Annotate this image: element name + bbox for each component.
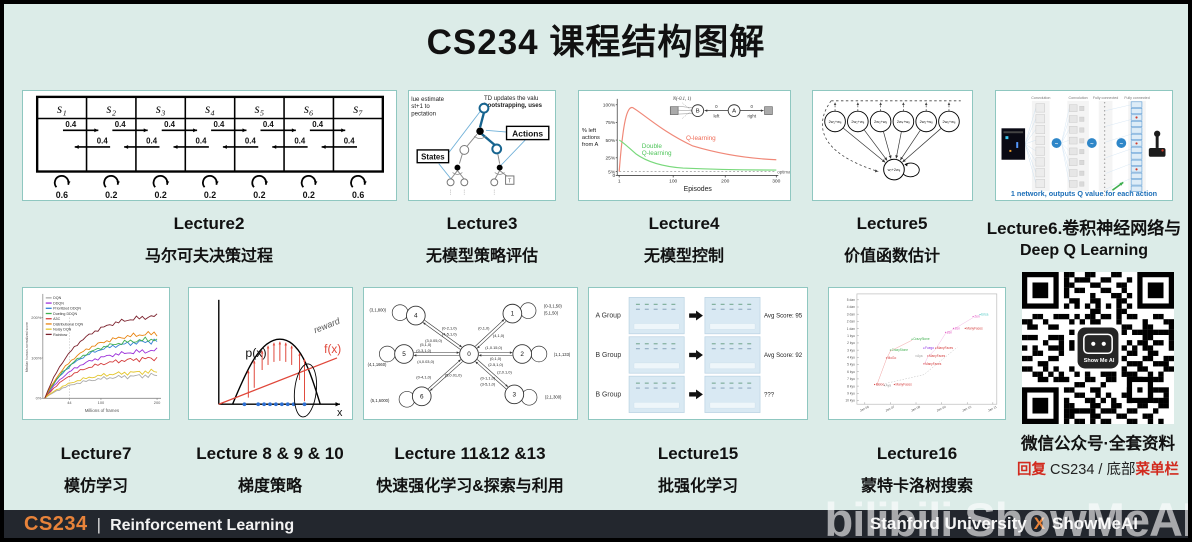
svg-text:(0-1,1,0): (0-1,1,0) [480,376,496,381]
svg-text:0.4: 0.4 [344,137,356,146]
qr-reply-menu: 菜单栏 [1135,462,1179,478]
svg-text:optimal: optimal [777,169,791,174]
lecture5-thumbnail: 2w₁+w₈2w₂+w₈2w₃+w₈2w₄+w₈2w₅+w₈2w₆+w₈w₇+2… [812,90,973,201]
svg-text:MoGo: MoGo [876,383,885,387]
svg-text:ManyFaces: ManyFaces [929,354,946,358]
svg-text:CrazyStone: CrazyStone [892,348,909,352]
svg-text:st+1 to: st+1 to [411,103,430,110]
svg-text:Jan 06: Jan 06 [859,405,870,413]
svg-text:75%: 75% [605,120,615,126]
svg-text:???: ??? [764,392,775,399]
svg-text:x: x [337,407,343,419]
svg-text:0.2: 0.2 [105,190,117,200]
svg-text:0.4: 0.4 [65,120,77,129]
svg-text:N(-0.1, 1): N(-0.1, 1) [672,97,692,102]
svg-text:(0-3,1,0): (0-3,1,0) [416,348,432,353]
svg-text:4: 4 [414,313,418,320]
svg-text:Avg Score: 92: Avg Score: 92 [764,352,803,359]
svg-text:0.4: 0.4 [245,137,257,146]
svg-text:(4-5,1,0): (4-5,1,0) [442,331,458,336]
svg-text:6 kyu: 6 kyu [847,370,855,374]
svg-text:3 kyu: 3 kyu [847,348,855,352]
svg-text:A3C: A3C [53,317,60,321]
svg-text:CrazyStone: CrazyStone [913,337,930,341]
lecture11-12-13-thumbnail: 0123456(0-3,1,50)(5,1,50)(1,1,133)(2,1,3… [363,287,578,420]
svg-text:right: right [747,114,756,119]
svg-text:5 kyu: 5 kyu [847,363,855,367]
svg-text:2w₆+w₈: 2w₆+w₈ [942,120,955,124]
svg-text:1 kyu: 1 kyu [847,334,855,338]
svg-text:0.4: 0.4 [196,137,208,146]
svg-text:~: ~ [1055,142,1059,148]
footer-divider: | [97,515,101,534]
svg-text:0.4: 0.4 [312,120,324,129]
svg-text:0.2: 0.2 [204,190,216,200]
svg-text:2w₃+w₈: 2w₃+w₈ [874,120,887,124]
svg-text:B Group: B Group [596,392,622,399]
svg-text:ManyFaces: ManyFaces [937,346,954,350]
university-name: Stanford University [870,514,1027,533]
qr-reply-keyword: 回复 [1017,462,1046,478]
brand-name: ShowMeAI [1052,514,1138,533]
svg-text:1: 1 [511,311,515,318]
svg-text:(0,1,0): (0,1,0) [490,356,502,361]
svg-text:A Group: A Group [596,313,621,320]
svg-text:s₃: s₃ [156,101,166,116]
svg-text:(5,1,50): (5,1,50) [544,311,559,316]
svg-text:Millions of frames: Millions of frames [85,408,120,413]
svg-text:⋮: ⋮ [448,190,454,196]
lecture6-title: Lecture6.卷积神经网络与 [884,214,1192,239]
svg-text:0.2: 0.2 [303,190,315,200]
footer-left: CS234|Reinforcement Learning [24,513,294,536]
svg-text:Jan 07: Jan 07 [885,405,896,413]
svg-text:(5,1,6000): (5,1,6000) [371,398,390,403]
svg-text:0.4: 0.4 [263,120,275,129]
svg-text:100: 100 [98,400,105,405]
qr-instruction: 回复 CS234 / 底部菜单栏 [988,458,1192,479]
svg-text:Jan 08: Jan 08 [910,405,921,413]
svg-text:(5,0.01,0): (5,0.01,0) [445,373,462,378]
footer-bar: CS234|Reinforcement Learning Stanford Un… [4,510,1188,538]
svg-text:s₆: s₆ [304,101,314,116]
svg-text:5: 5 [402,351,406,358]
collab-x-icon: X [1034,514,1045,533]
svg-text:from A: from A [582,142,599,148]
svg-text:100%: 100% [31,355,42,360]
lecture6-subtitle: Deep Q Learning [884,242,1192,260]
svg-text:(4,1,1660): (4,1,1660) [368,362,387,367]
svg-text:Zen: Zen [955,326,961,330]
svg-text:ManyFaces: ManyFaces [966,326,983,330]
svg-text:MoGo: MoGo [888,356,897,360]
svg-text:(4,0.03,0): (4,0.03,0) [417,359,434,364]
svg-text:Zen: Zen [947,330,953,334]
svg-text:2w₅+w₈: 2w₅+w₈ [920,120,933,124]
svg-text:5 dan: 5 dan [847,298,855,302]
svg-text:s₅: s₅ [254,101,264,116]
svg-text:~: ~ [1090,142,1094,148]
svg-text:B: B [696,109,700,115]
svg-text:DDQN: DDQN [53,301,64,305]
svg-text:Erica: Erica [981,313,988,317]
svg-text:0: 0 [715,104,718,109]
svg-text:Jan 10: Jan 10 [962,405,973,413]
svg-text:Actions: Actions [512,128,543,138]
svg-text:Rainbow: Rainbow [53,333,67,337]
svg-text:Zen: Zen [974,315,980,319]
svg-text:Fully connected: Fully connected [1093,96,1118,100]
svg-text:lue estimate: lue estimate [411,96,444,103]
svg-text:0.4: 0.4 [214,120,226,129]
svg-text:4 dan: 4 dan [847,305,855,309]
svg-text:2 kyu: 2 kyu [847,341,855,345]
lecture15-thumbnail: A GroupAvg Score: 95B GroupAvg Score: 92… [588,287,808,420]
svg-text:p(x): p(x) [245,346,266,360]
svg-text:0: 0 [613,173,616,179]
svg-text:TD updates the valu: TD updates the valu [484,95,538,102]
svg-text:(2-5,1,0): (2-5,1,0) [488,362,504,367]
svg-text:0.4: 0.4 [164,120,176,129]
svg-text:Dueling DDQN: Dueling DDQN [53,312,77,316]
svg-text:Jan 09: Jan 09 [936,405,947,413]
svg-text:(5,1,0): (5,1,0) [420,342,432,347]
svg-text:300: 300 [772,178,780,184]
footer-right: Stanford UniversityXShowMeAI [870,514,1138,534]
lecture6-thumbnail: ConvolutionConvolutionFully connectedFul… [995,90,1173,201]
svg-text:200: 200 [154,400,161,405]
svg-text:(3,1,800): (3,1,800) [370,308,387,313]
svg-text:200%: 200% [31,315,42,320]
svg-text:0%: 0% [36,396,42,401]
svg-text:100: 100 [669,178,677,184]
svg-text:s₇: s₇ [353,101,363,116]
svg-text:2 dan: 2 dan [847,320,855,324]
svg-text:(1,1,133): (1,1,133) [554,352,571,357]
svg-text:1 dan: 1 dan [847,327,855,331]
course-name: Reinforcement Learning [110,517,294,534]
infographic-page: CS234 课程结构图解 s₁s₂s₃s₄s₅s₆s₇0.40.40.40.40… [0,0,1192,542]
svg-text:2w₄+w₈: 2w₄+w₈ [897,120,910,124]
svg-text:bootstrapping, uses: bootstrapping, uses [484,102,543,109]
svg-text:(0-4,1,0): (0-4,1,0) [416,375,432,380]
svg-text:200: 200 [721,178,729,184]
svg-text:(0-2,1,0): (0-2,1,0) [442,325,458,330]
svg-text:Convolution: Convolution [1069,96,1088,100]
svg-text:0: 0 [751,104,754,109]
svg-text:Prioritized DDQN: Prioritized DDQN [53,307,81,311]
svg-text:6: 6 [420,393,424,400]
svg-text:ManyFaces: ManyFaces [925,362,942,366]
lecture7-thumbnail: 200%100%0%Median human-normalized score4… [22,287,170,420]
svg-text:(1,0.15,0): (1,0.15,0) [485,345,502,350]
svg-text:Convolution: Convolution [1031,96,1050,100]
lecture3-thumbnail: lue estimatest+1 topectationTD updates t… [408,90,556,201]
svg-text:2w₂+w₈: 2w₂+w₈ [851,120,864,124]
svg-text:Aya: Aya [917,354,923,358]
lecture16-thumbnail: 5 dan4 dan3 dan2 dan1 dan1 kyu2 kyu3 kyu… [828,287,1006,420]
svg-text:A: A [732,109,736,115]
qr-caption: 微信公众号·全套资料 [998,430,1192,454]
svg-text:(4,1,0): (4,1,0) [493,333,505,338]
svg-text:Show Me AI: Show Me AI [1084,358,1115,364]
svg-text:1: 1 [618,178,621,184]
svg-text:(0-3,1,50): (0-3,1,50) [544,304,563,309]
qr-reply-code: CS234 / 底部 [1046,462,1135,478]
qr-code: Show Me AI [1022,272,1174,424]
svg-text:0.4: 0.4 [115,120,127,129]
svg-text:0.6: 0.6 [56,190,68,200]
svg-text:2: 2 [520,351,524,358]
svg-text:~: ~ [1120,142,1124,148]
svg-text:8 kyu: 8 kyu [847,384,855,388]
svg-text:(3-5,1,0): (3-5,1,0) [480,382,496,387]
svg-text:reward: reward [312,315,342,335]
svg-text:1 network, outputs Q value for: 1 network, outputs Q value for each acti… [1011,189,1157,198]
svg-text:2w₁+w₈: 2w₁+w₈ [829,120,842,124]
svg-text:7 kyu: 7 kyu [847,377,855,381]
svg-text:B Group: B Group [596,352,622,359]
lecture2-thumbnail: s₁s₂s₃s₄s₅s₆s₇0.40.40.40.40.40.40.40.40.… [22,90,397,201]
svg-text:3: 3 [513,391,517,398]
svg-text:(0,1,0): (0,1,0) [478,325,490,330]
svg-text:Q-learning: Q-learning [686,135,716,142]
svg-text:% left: % left [582,128,597,134]
lecture4-thumbnail: 100%75%50%25%5%0% leftactionsfrom A11002… [578,90,791,201]
svg-text:9 kyu: 9 kyu [847,391,855,395]
svg-text:Episodes: Episodes [684,186,713,193]
svg-text:pectation: pectation [411,111,436,118]
svg-text:left: left [713,114,720,119]
svg-text:0: 0 [467,351,471,358]
svg-text:Jan 11: Jan 11 [987,405,997,413]
svg-text:10 kyu: 10 kyu [845,399,855,403]
svg-text:s₄: s₄ [205,101,215,116]
svg-text:0.4: 0.4 [97,137,109,146]
svg-text:0.2: 0.2 [253,190,265,200]
svg-text:0.4: 0.4 [294,137,306,146]
svg-text:w₇+2w₈: w₇+2w₈ [888,168,901,172]
svg-text:0.2: 0.2 [154,190,166,200]
svg-text:Median human-normalized score: Median human-normalized score [25,322,29,372]
svg-text:44: 44 [67,400,72,405]
svg-text:⋮: ⋮ [491,190,497,196]
svg-text:Q-learning: Q-learning [642,150,672,157]
svg-text:3 dan: 3 dan [847,312,855,316]
svg-text:Distributional DQN: Distributional DQN [53,322,83,326]
svg-text:ManyFaces: ManyFaces [896,383,913,387]
svg-text:s₂: s₂ [106,101,116,116]
svg-text:(2,0.1,0): (2,0.1,0) [497,370,512,375]
svg-text:⋮: ⋮ [461,190,467,196]
page-title: CS234 课程结构图解 [4,14,1188,65]
svg-text:States: States [421,153,445,162]
svg-text:0.6: 0.6 [352,190,364,200]
svg-text:100%: 100% [603,103,616,109]
svg-text:Noisy DQN: Noisy DQN [53,328,72,332]
course-code: CS234 [24,513,88,535]
svg-text:Fuego: Fuego [925,346,934,350]
svg-text:f(x): f(x) [324,342,341,356]
svg-text:Fully connected: Fully connected [1124,96,1149,100]
svg-text:(2,1,300): (2,1,300) [545,394,562,399]
svg-text:50%: 50% [605,138,615,144]
lecture8-9-10-thumbnail: xp(x)f(x)reward [188,287,353,420]
svg-text:4 kyu: 4 kyu [847,356,855,360]
svg-text:actions: actions [582,135,600,141]
svg-text:Aya: Aya [886,383,892,387]
svg-text:DQN: DQN [53,296,61,300]
svg-text:s₁: s₁ [57,101,67,116]
svg-text:Avg Score: 95: Avg Score: 95 [764,313,803,320]
svg-text:0.4: 0.4 [146,137,158,146]
svg-text:25%: 25% [605,156,615,162]
